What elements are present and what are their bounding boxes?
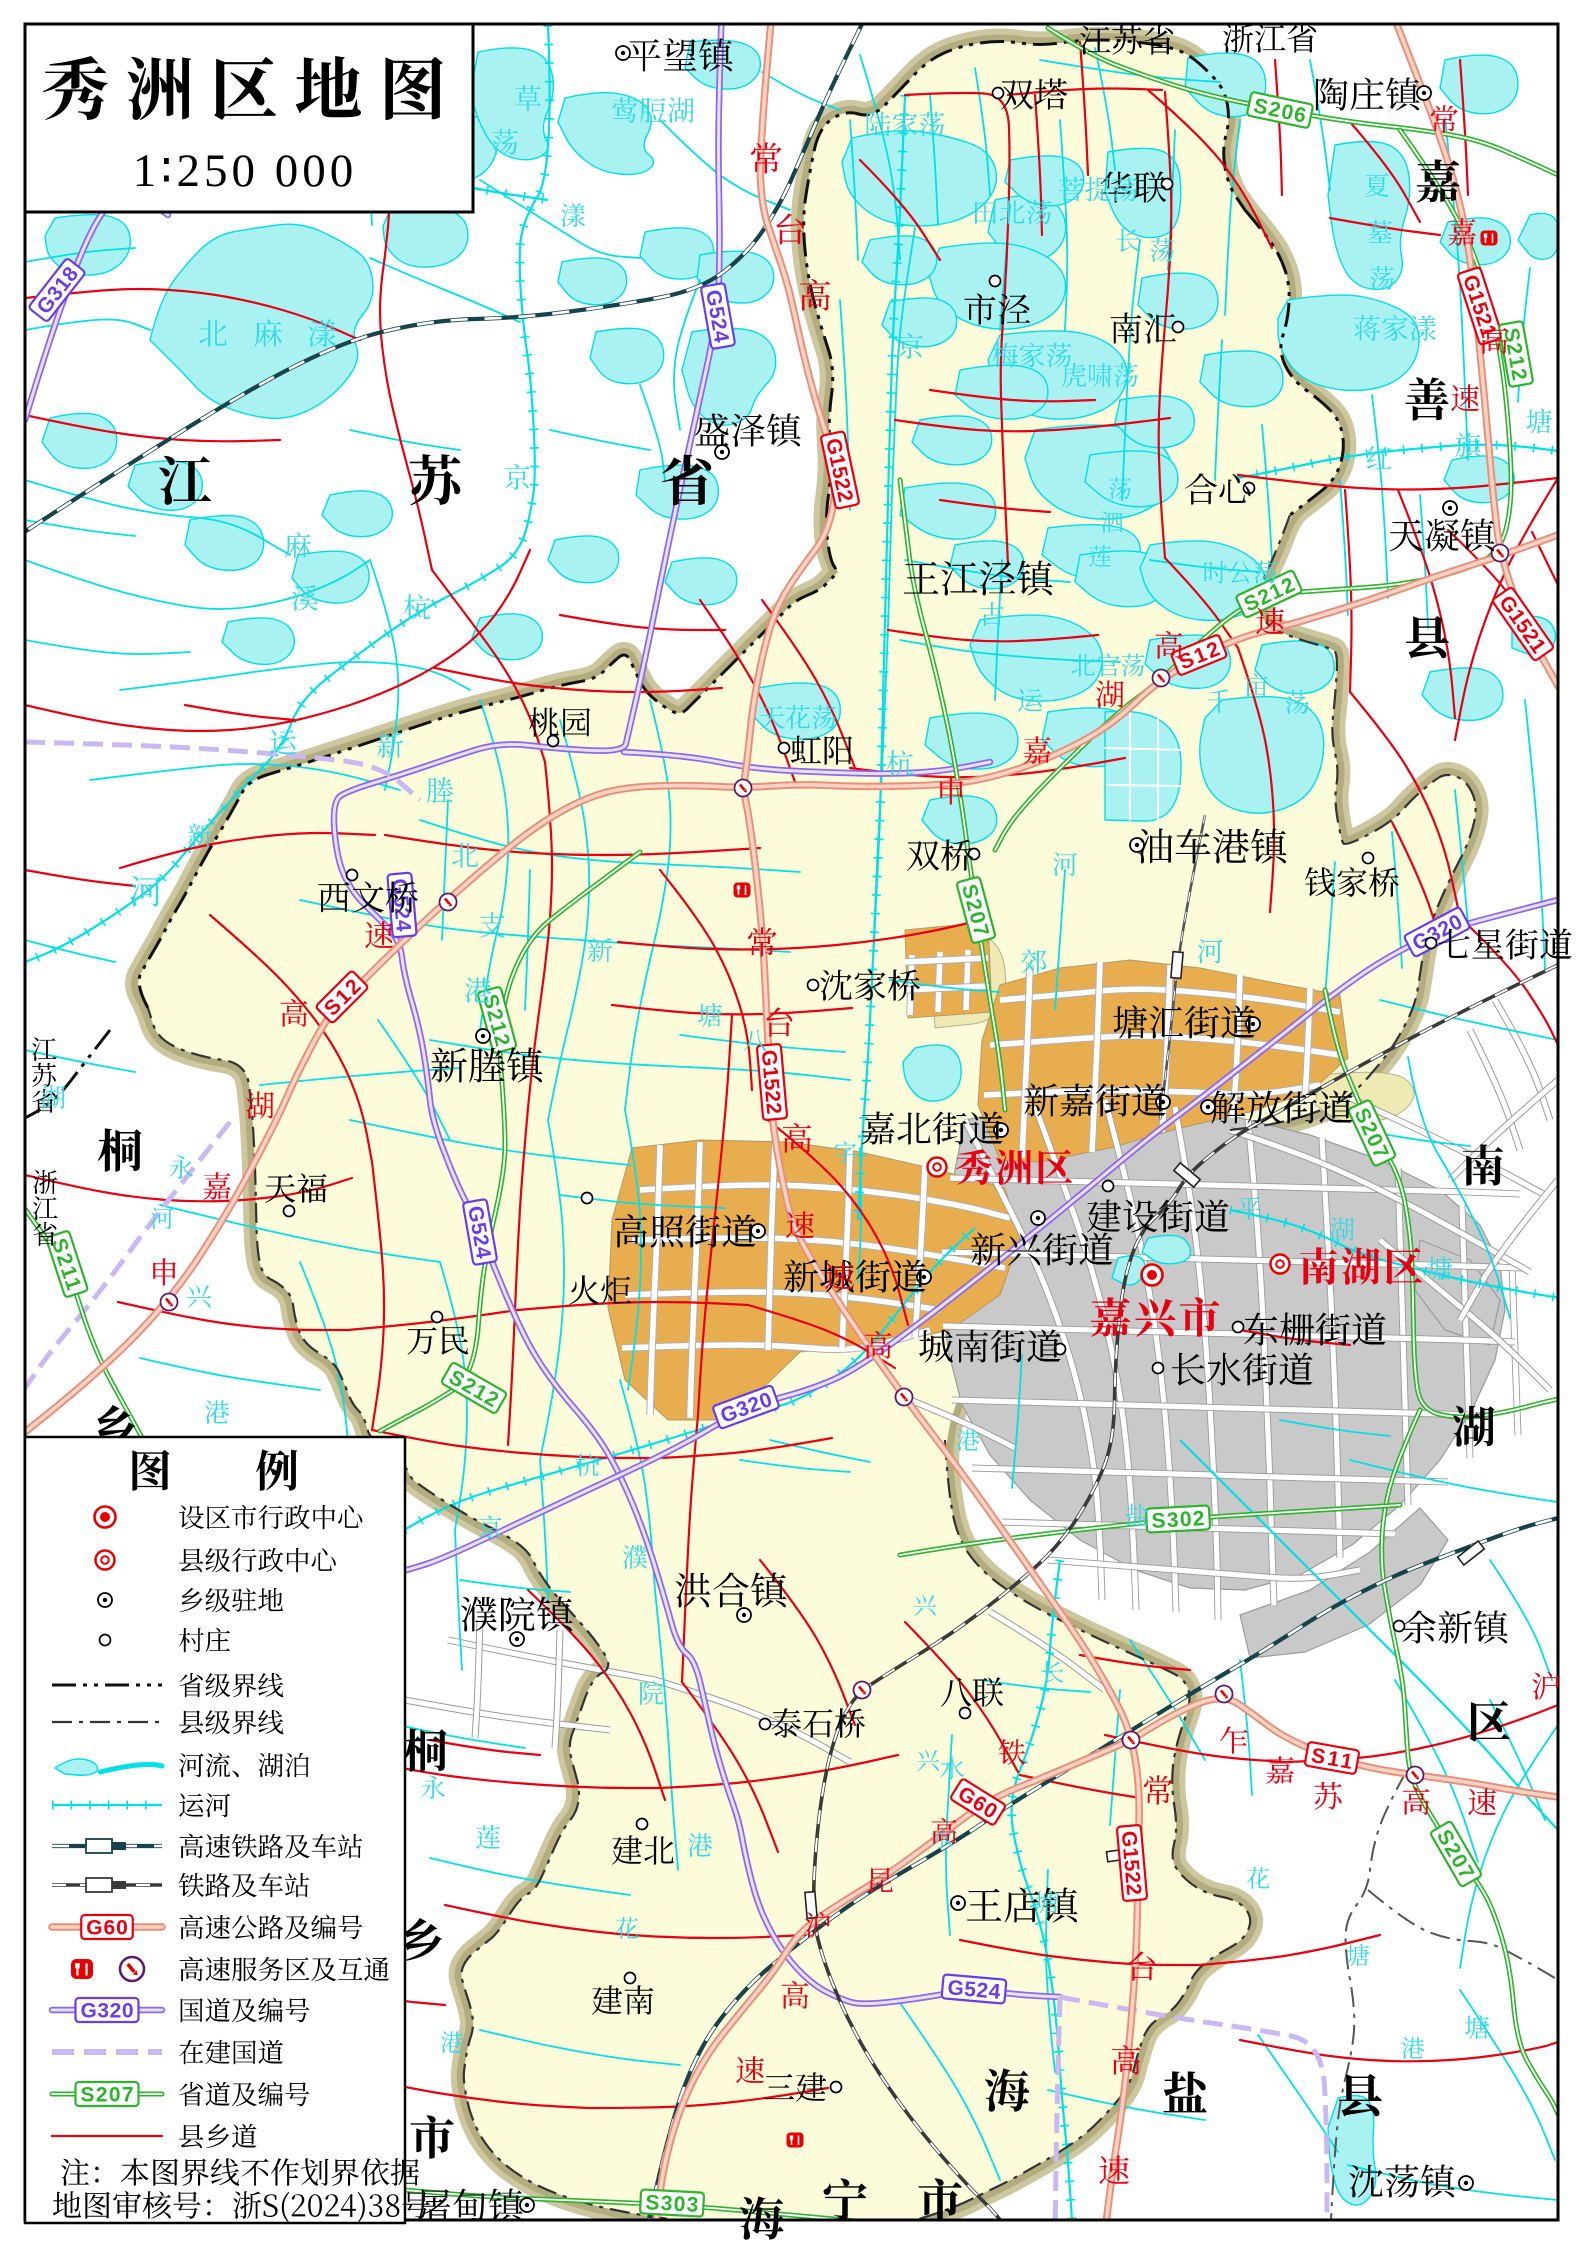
- svg-text:G320: G320: [81, 2000, 134, 2023]
- svg-text:G524: G524: [947, 1976, 1002, 2004]
- svg-text:S207: S207: [81, 2084, 134, 2107]
- svg-text:1∶250 000: 1∶250 000: [133, 145, 357, 197]
- svg-text:S302: S302: [1151, 1507, 1205, 1533]
- svg-text:S303: S303: [645, 2191, 699, 2217]
- svg-text:G60: G60: [86, 1917, 128, 1940]
